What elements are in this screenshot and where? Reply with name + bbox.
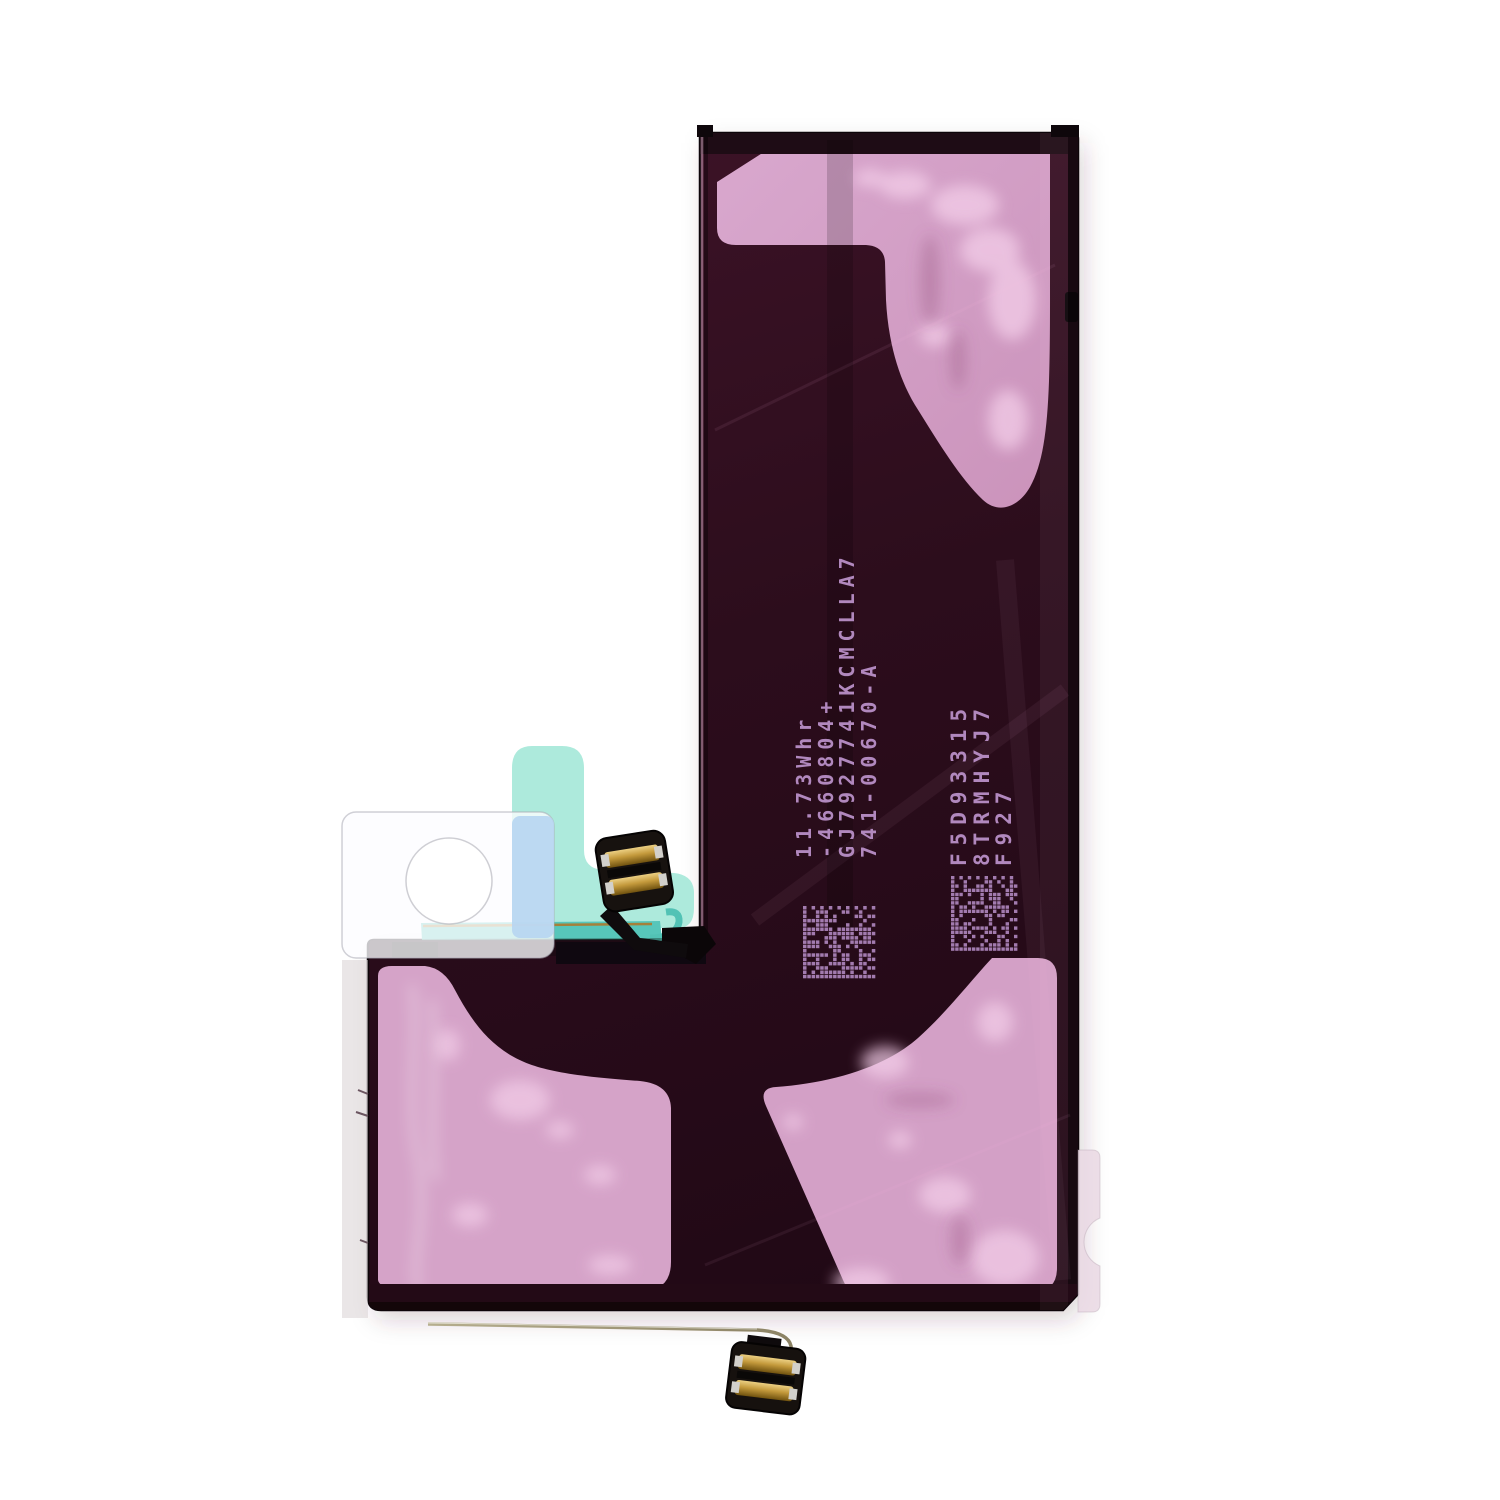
product-photo: 11.73Whr -4660804+ GJ7927741KCMCLLA7 741… (0, 0, 1500, 1500)
print-line: 8TRMHYJ7 (971, 670, 994, 866)
print-line: 11.73Whr (794, 546, 816, 858)
top-edge-tab-right (1051, 125, 1079, 137)
battery-connector-upper (594, 829, 675, 913)
print-line: 741-00670-A (859, 546, 881, 858)
liner-strip-right (1078, 1150, 1100, 1312)
serial-print-block-2: F5D93315 8TRMHYJ7 F927 (948, 670, 1016, 866)
print-line: F927 (993, 670, 1016, 866)
serial-print-block-1: 11.73Whr -4660804+ GJ7927741KCMCLLA7 741… (794, 546, 880, 858)
film-cutout-circle (406, 838, 492, 924)
protective-film (342, 812, 554, 958)
battery-connector-lower (725, 1333, 807, 1415)
bottom-edge-line (369, 1302, 1077, 1310)
battery-illustration (0, 0, 1500, 1500)
print-line: -4660804+ (816, 546, 838, 858)
top-edge-tab-left (697, 125, 713, 137)
film-over-tab-blue (512, 816, 554, 938)
print-line: F5D93315 (948, 670, 971, 866)
print-line: GJ7927741KCMCLLA7 (837, 546, 859, 858)
liner-strip-left (342, 960, 368, 1318)
battery-top-edge (700, 133, 1078, 154)
